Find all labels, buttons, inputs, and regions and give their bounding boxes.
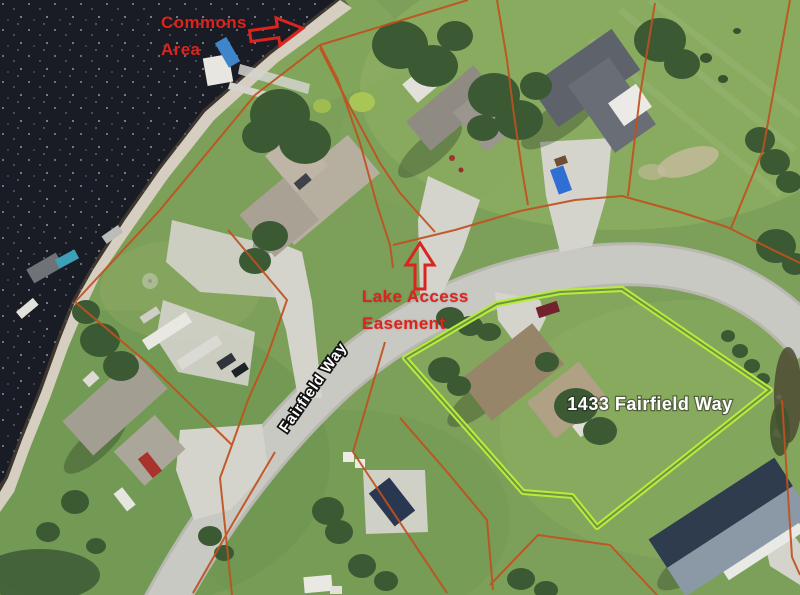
easement-line2: Easement xyxy=(362,310,469,337)
lake-access-easement-label: Lake Access Easement xyxy=(362,283,469,337)
commons-area-line2: Area xyxy=(161,36,247,63)
commons-area-line1: Commons xyxy=(161,9,247,36)
commons-area-label: Commons Area xyxy=(161,9,247,63)
property-address-label: 1433 Fairfield Way xyxy=(567,394,732,414)
aerial-plat-map: Fairfield Way 1433 Fairfield Way Commons… xyxy=(0,0,800,595)
easement-line1: Lake Access xyxy=(362,283,469,310)
shed-white xyxy=(303,575,332,593)
